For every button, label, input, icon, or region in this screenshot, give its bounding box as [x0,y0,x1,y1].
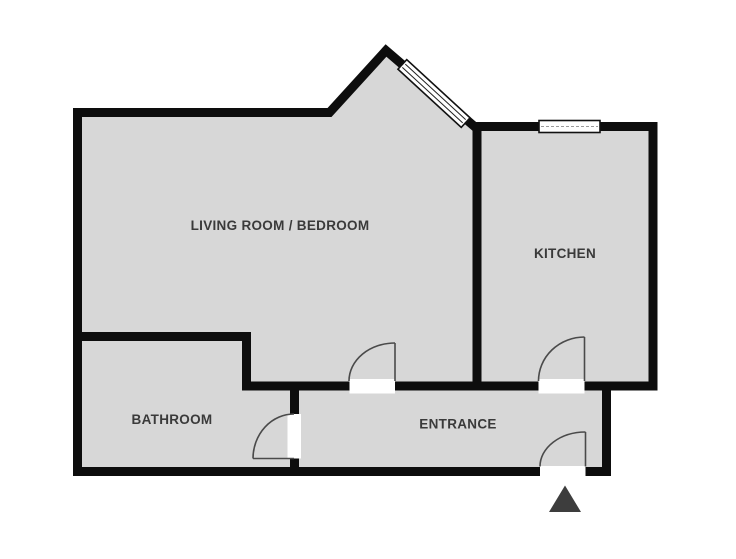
room-label-living-room-bedroom: LIVING ROOM / BEDROOM [191,218,370,233]
entrance-door-opening [540,466,586,478]
entrance-arrow-icon [549,486,581,513]
floor-plan: LIVING ROOM / BEDROOM KITCHEN BATHROOM E… [0,0,736,559]
room-label-kitchen: KITCHEN [534,246,596,261]
floor-plan-canvas: LIVING ROOM / BEDROOM KITCHEN BATHROOM E… [0,0,736,559]
room-label-bathroom: BATHROOM [132,412,213,427]
kitchen-door-opening [539,379,585,394]
living-room-door-opening [350,379,396,394]
room-label-entrance: ENTRANCE [419,417,496,432]
bathroom-door-opening [288,414,302,459]
kitchen-window-icon [539,121,600,133]
